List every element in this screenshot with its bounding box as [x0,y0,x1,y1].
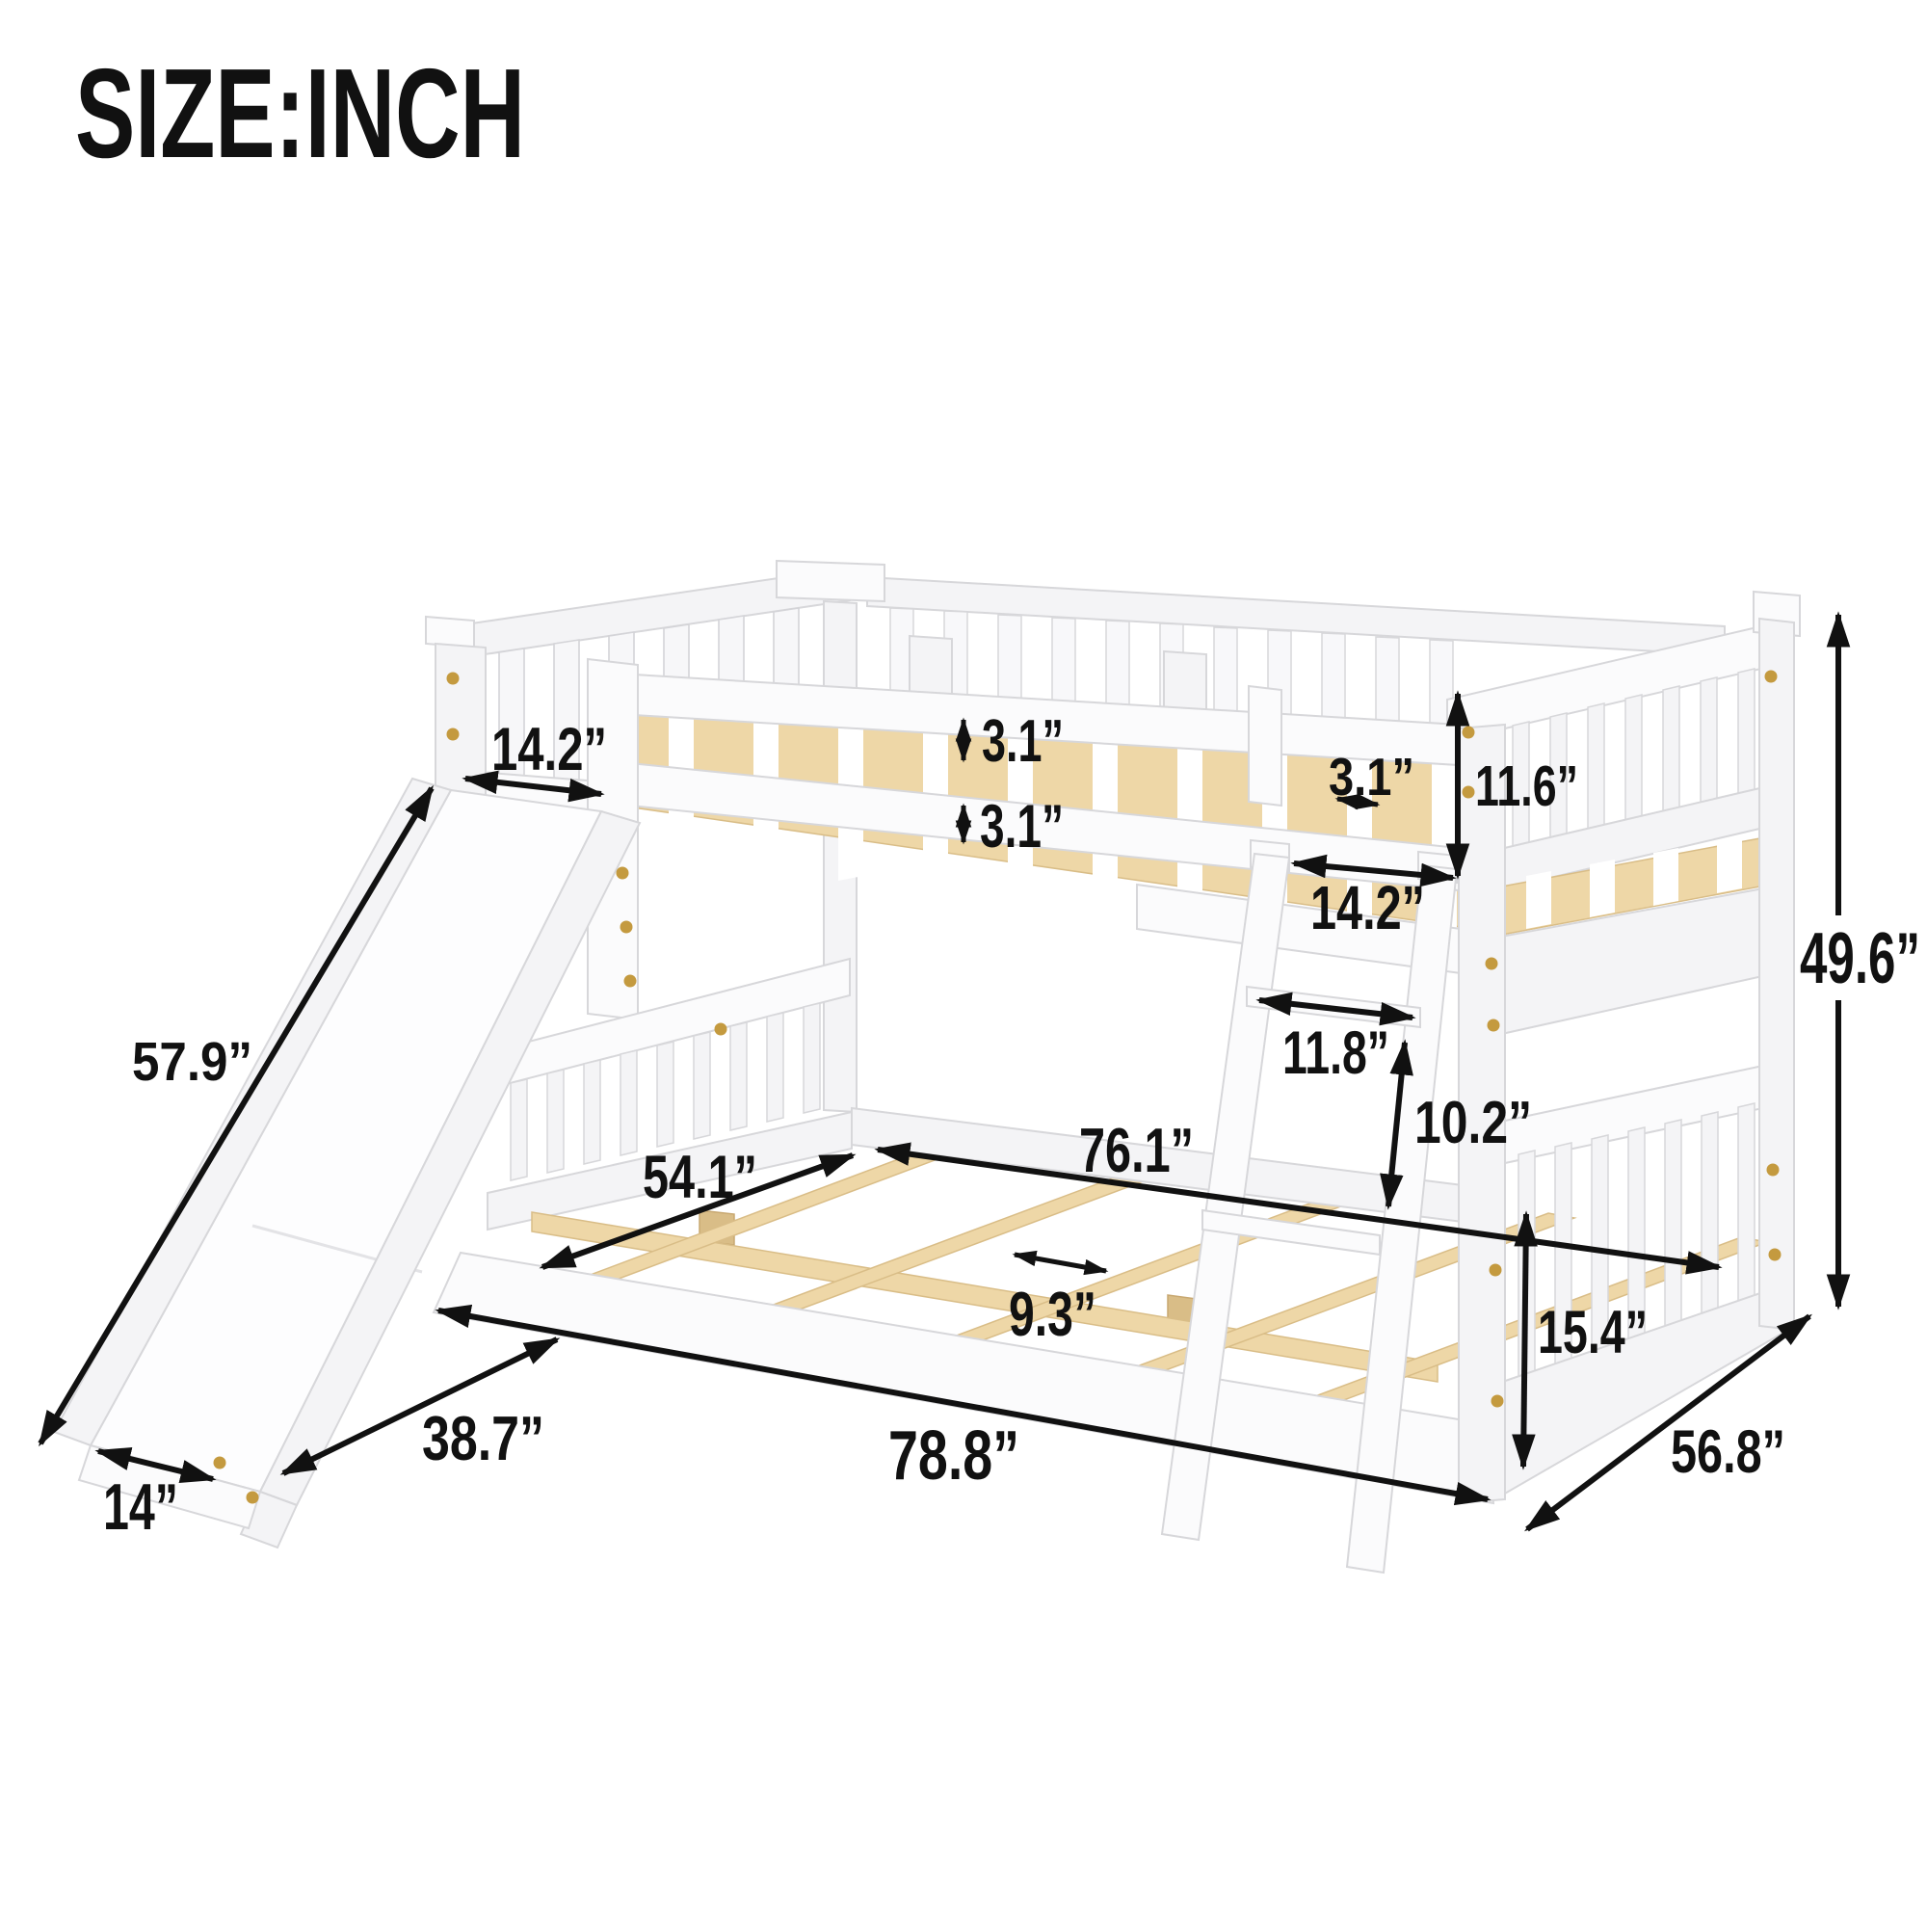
svg-text:14.2”: 14.2” [1310,873,1425,942]
svg-text:3.1”: 3.1” [982,708,1064,775]
svg-text:14”: 14” [103,1470,178,1544]
svg-text:49.6”: 49.6” [1800,917,1920,998]
svg-text:54.1”: 54.1” [643,1144,757,1211]
svg-text:11.8”: 11.8” [1282,1019,1389,1087]
svg-text:76.1”: 76.1” [1079,1115,1194,1185]
svg-text:11.6”: 11.6” [1475,754,1578,818]
svg-text:10.2”: 10.2” [1414,1090,1532,1156]
svg-text:15.4”: 15.4” [1538,1299,1648,1366]
svg-text:14.2”: 14.2” [491,716,607,783]
svg-text:56.8”: 56.8” [1671,1418,1785,1486]
svg-text:78.8”: 78.8” [888,1417,1019,1495]
svg-text:SIZE:INCH: SIZE:INCH [75,42,525,184]
svg-text:38.7”: 38.7” [422,1403,544,1473]
svg-text:57.9”: 57.9” [132,1031,252,1093]
svg-text:3.1”: 3.1” [1329,747,1414,807]
svg-text:3.1”: 3.1” [980,793,1064,860]
svg-text:9.3”: 9.3” [1009,1279,1096,1349]
